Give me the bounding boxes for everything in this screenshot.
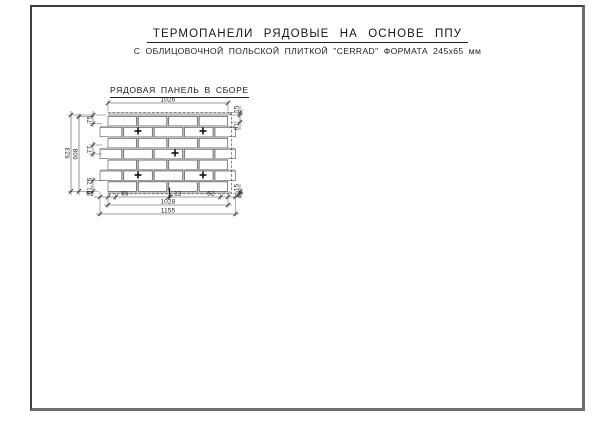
brick [138, 138, 166, 147]
brick [199, 117, 227, 126]
brick [124, 149, 152, 158]
brick [169, 117, 197, 126]
brick [154, 171, 182, 180]
brick [215, 171, 236, 180]
dim-left-course: 77 [86, 146, 93, 154]
dim-top-width: 1026 [161, 96, 176, 103]
brick [100, 149, 122, 158]
dim-left-top: 75 [86, 116, 93, 124]
brick [185, 171, 213, 180]
dim-bottom-right-offset: 62 [207, 191, 215, 198]
brick [138, 117, 166, 126]
dim-joint: 12 [174, 191, 182, 198]
brick [108, 117, 136, 126]
foam-lip-top [108, 113, 232, 116]
sheet-subtitle: С ОБЛИЦОВОЧНОЙ ПОЛЬСКОЙ ПЛИТКОЙ "CERRAD"… [134, 46, 481, 56]
dim-right-upper: 61 [233, 123, 240, 131]
brick [185, 149, 213, 158]
dim-top-lip: 15 [233, 105, 240, 113]
panel-assembly-drawing: 1026 62 65 12 62 1028 1155 623 608 75 77… [50, 92, 265, 232]
dim-left-bottom: 91,75 [86, 177, 93, 194]
brick [100, 171, 122, 180]
dim-bottom-width-overall: 1155 [161, 208, 176, 215]
dim-height-overall: 623 [64, 147, 71, 158]
sheet-subtitle-row: С ОБЛИЦОВОЧНОЙ ПОЛЬСКОЙ ПЛИТКОЙ "CERRAD"… [30, 41, 585, 59]
brick [199, 138, 227, 147]
brick [169, 138, 197, 147]
brick [169, 160, 197, 169]
dim-height-inner: 608 [72, 148, 79, 159]
brick [185, 127, 213, 136]
brick [108, 160, 136, 169]
brick [154, 127, 182, 136]
brick [108, 138, 136, 147]
dim-bottom-width-inner: 1028 [161, 199, 176, 206]
brick [215, 149, 236, 158]
brick [100, 127, 122, 136]
brick [199, 160, 227, 169]
brick [138, 182, 166, 191]
brick [154, 149, 182, 158]
brick-pattern [100, 115, 236, 191]
dim-bottom-left-step: 65 [121, 191, 129, 198]
brick [169, 182, 197, 191]
brick [138, 160, 166, 169]
